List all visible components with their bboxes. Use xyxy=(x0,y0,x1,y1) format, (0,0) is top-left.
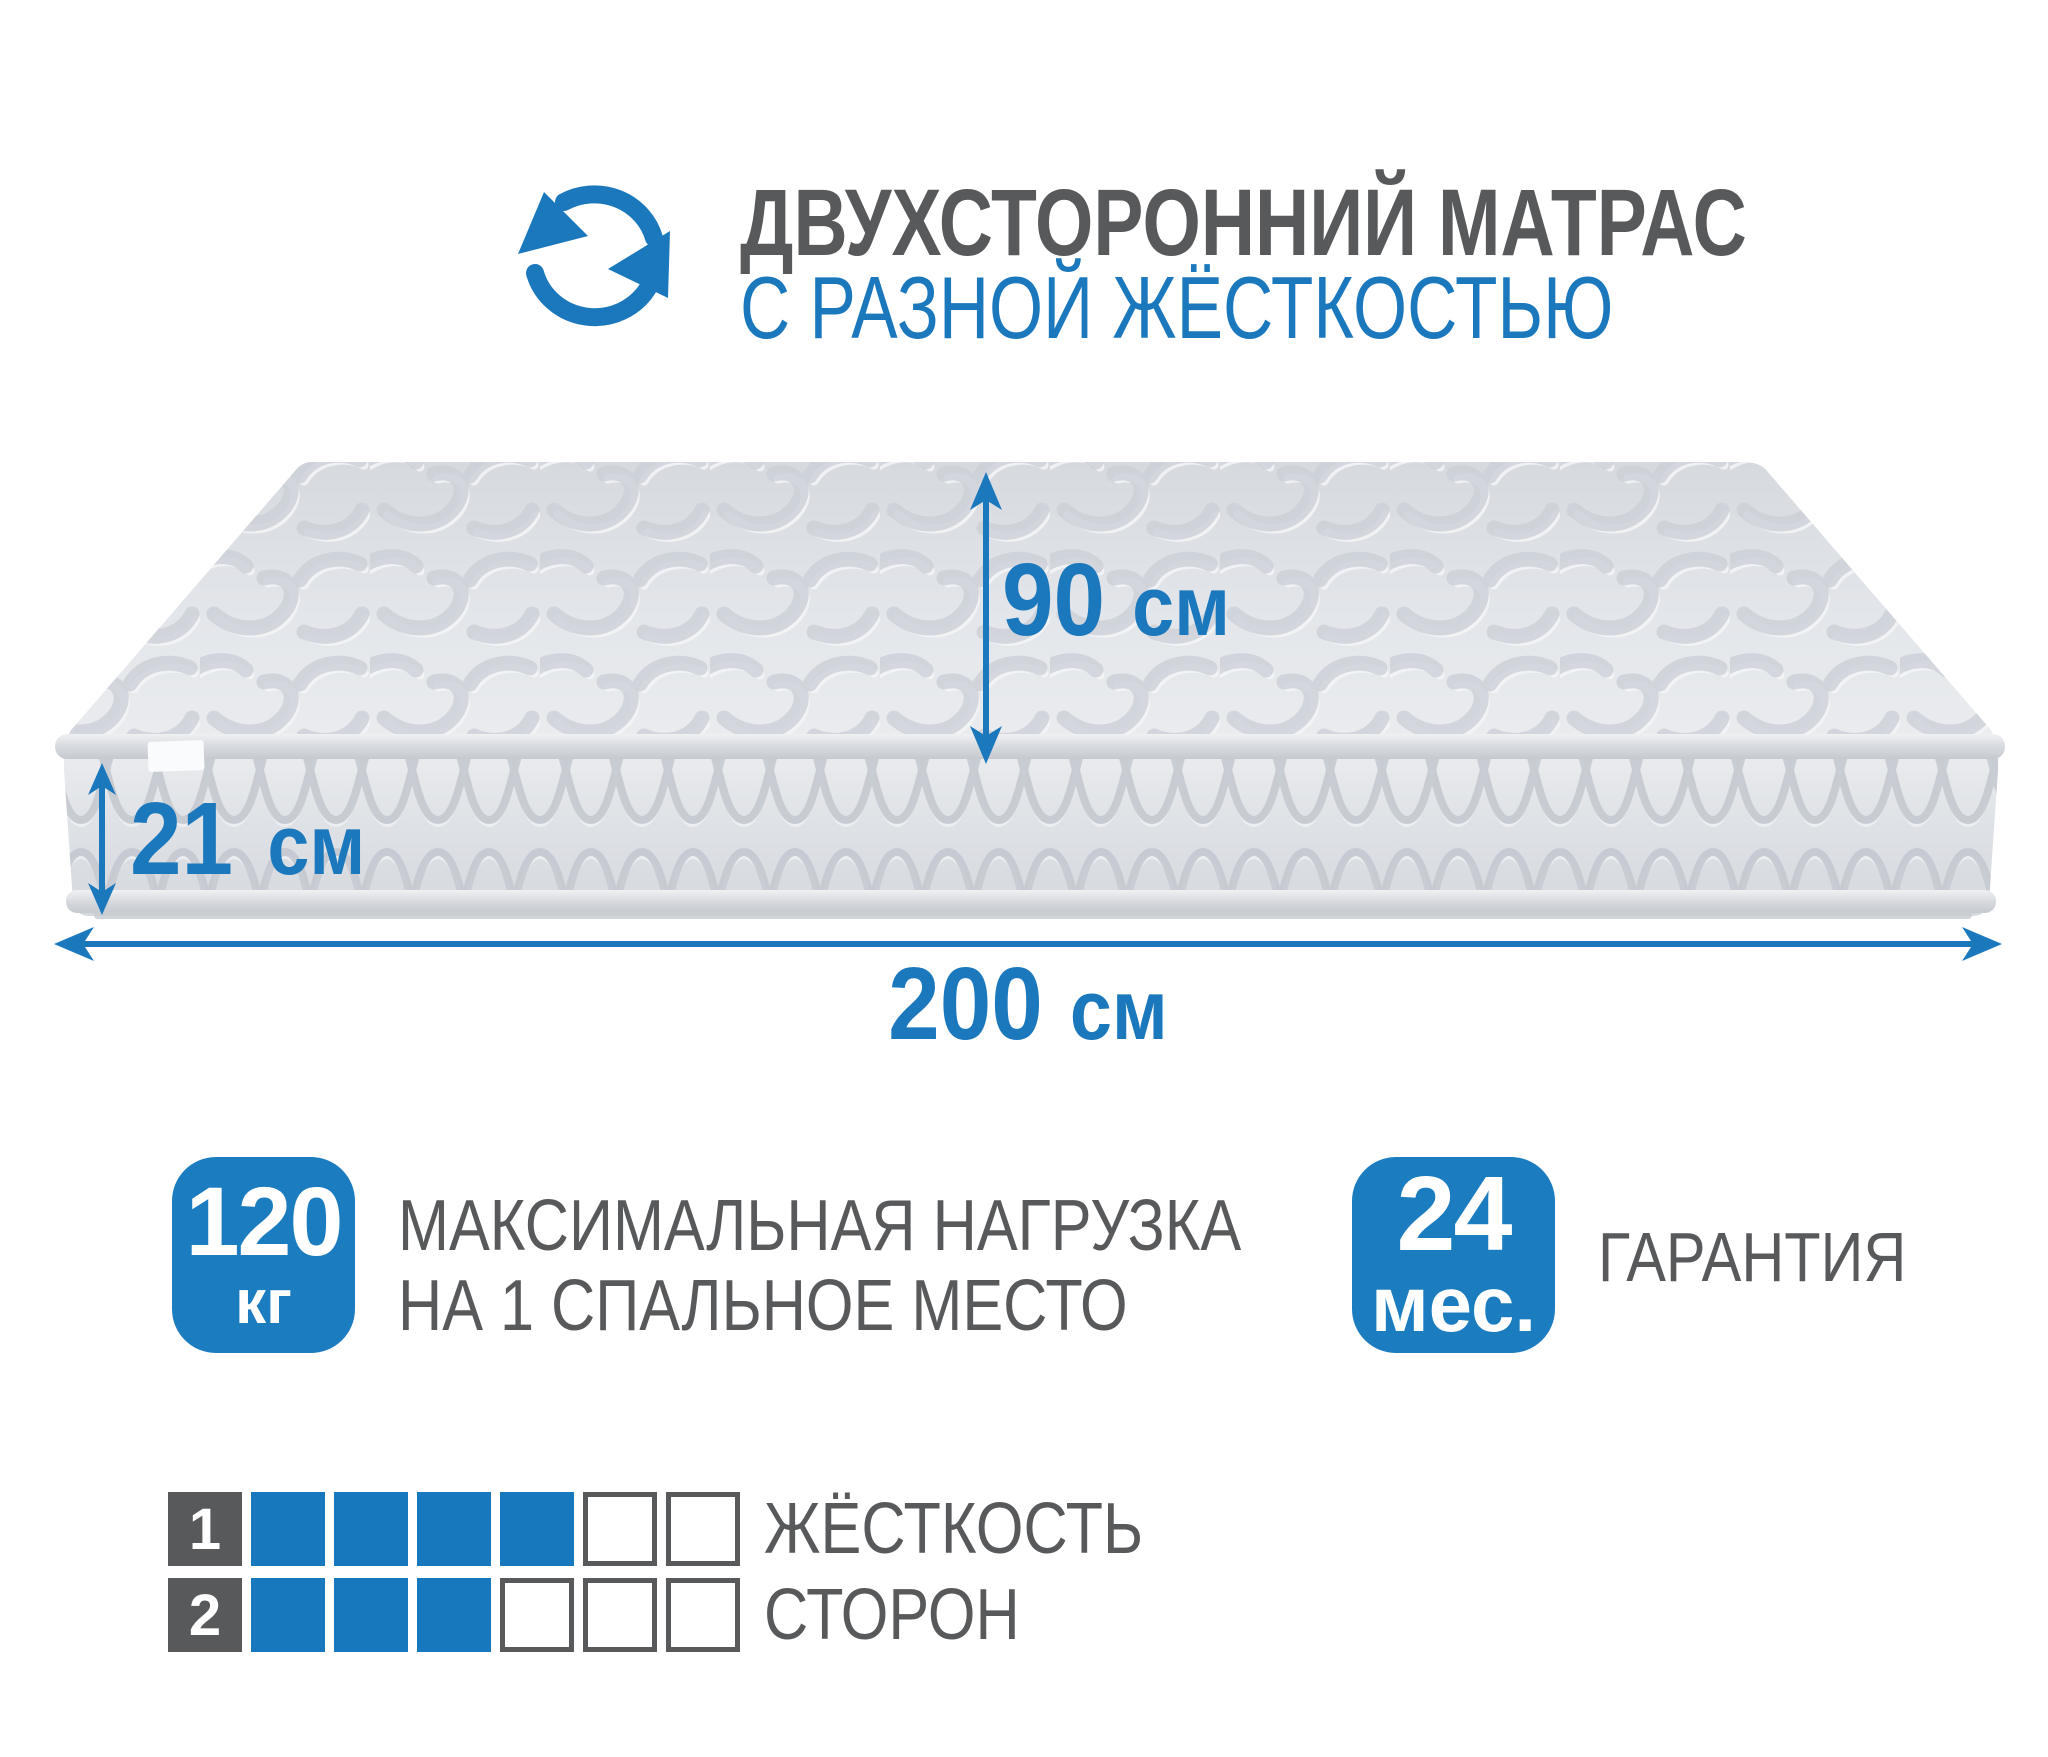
firmness-cell-filled xyxy=(417,1578,491,1652)
firmness-side-number: 2 xyxy=(168,1578,242,1652)
firmness-cell-filled xyxy=(500,1492,574,1566)
firmness-cell-filled xyxy=(417,1492,491,1566)
firmness-cell-filled xyxy=(251,1578,325,1652)
firmness-row: 2 xyxy=(168,1578,740,1652)
firmness-cell-filled xyxy=(334,1578,408,1652)
width-dimension-arrow xyxy=(966,468,1006,768)
width-dimension-label: 90 см xyxy=(1002,548,1230,651)
mattress-infographic: ДВУХСТОРОННИЙ МАТРАС С РАЗНОЙ ЖЁСТКОСТЬЮ xyxy=(0,0,2048,1757)
firmness-side-number: 1 xyxy=(168,1492,242,1566)
rotate-cycle-icon xyxy=(508,176,678,334)
length-unit: см xyxy=(1070,968,1168,1052)
width-unit: см xyxy=(1132,564,1230,648)
firmness-cell-empty xyxy=(583,1492,657,1566)
max-load-badge: 120 кг xyxy=(172,1157,355,1353)
page-subtitle: С РАЗНОЙ ЖЁСТКОСТЬЮ xyxy=(740,264,1846,352)
width-value: 90 xyxy=(1002,548,1105,651)
max-load-value: 120 xyxy=(186,1176,342,1268)
page-title: ДВУХСТОРОННИЙ МАТРАС xyxy=(740,176,2014,271)
firmness-grid: 12 xyxy=(168,1492,740,1652)
height-dimension-arrow xyxy=(84,760,120,918)
height-unit: см xyxy=(267,803,365,887)
firmness-cell-empty xyxy=(666,1492,740,1566)
warranty-caption: ГАРАНТИЯ xyxy=(1598,1222,1961,1292)
mattress-bottom-piping xyxy=(66,890,1996,913)
firmness-caption-line2: СТОРОН xyxy=(764,1578,1065,1652)
firmness-cell-empty xyxy=(500,1578,574,1652)
warranty-badge: 24 мес. xyxy=(1352,1157,1555,1353)
max-load-caption-line2: НА 1 СПАЛЬНОЕ МЕСТО xyxy=(398,1266,1128,1346)
length-dimension-label: 200 см xyxy=(839,952,1217,1055)
firmness-cell-filled xyxy=(334,1492,408,1566)
firmness-row: 1 xyxy=(168,1492,740,1566)
height-dimension-label: 21 см xyxy=(130,787,365,890)
firmness-cell-empty xyxy=(666,1578,740,1652)
mattress-base-edge xyxy=(94,912,1972,919)
mattress-top-piping xyxy=(55,734,2005,759)
length-value: 200 xyxy=(888,952,1043,1055)
height-value: 21 xyxy=(130,787,233,890)
warranty-value: 24 xyxy=(1397,1167,1511,1262)
warranty-unit: мес. xyxy=(1371,1265,1536,1343)
max-load-unit: кг xyxy=(235,1272,292,1334)
mattress-label-tag xyxy=(147,740,204,772)
max-load-caption-line1: МАКСИМАЛЬНАЯ НАГРУЗКА xyxy=(398,1186,1241,1266)
max-load-caption: МАКСИМАЛЬНАЯ НАГРУЗКА НА 1 СПАЛЬНОЕ МЕСТ… xyxy=(398,1186,1390,1346)
firmness-caption-line1: ЖЁСТКОСТЬ xyxy=(764,1492,1210,1566)
firmness-cell-filled xyxy=(251,1492,325,1566)
firmness-cell-empty xyxy=(583,1578,657,1652)
